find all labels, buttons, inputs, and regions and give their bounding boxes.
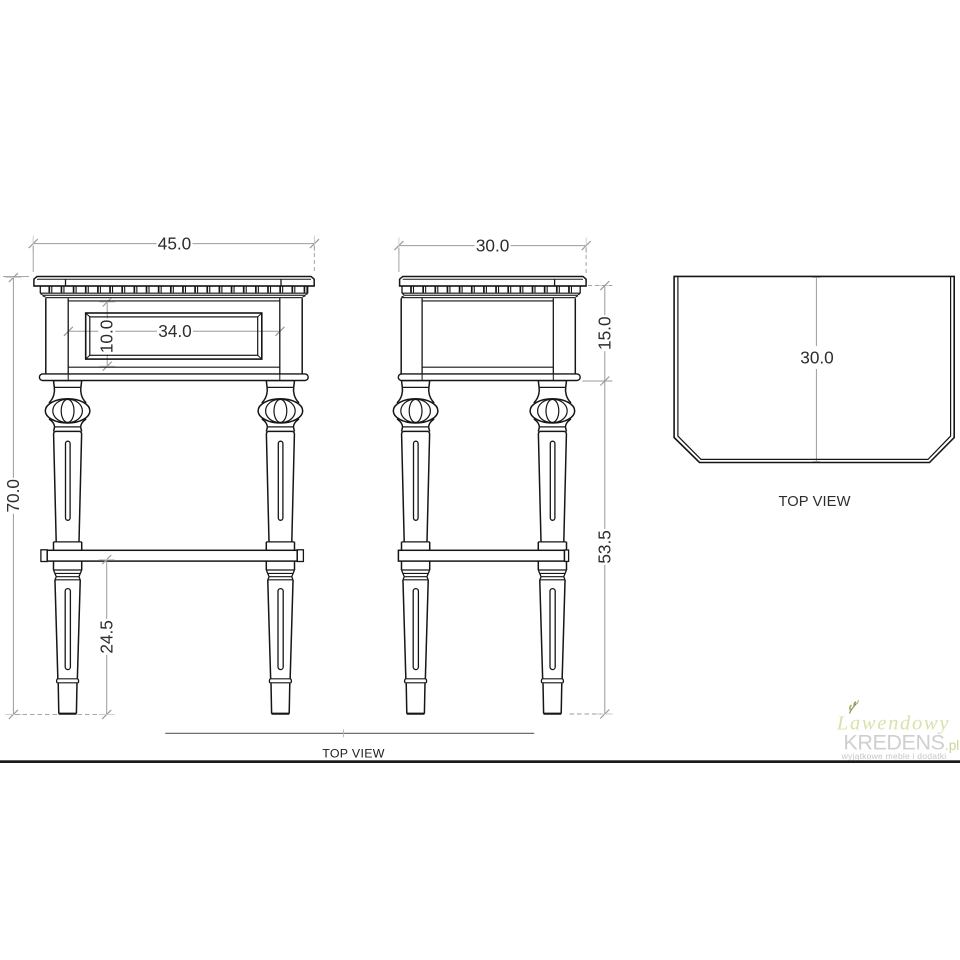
svg-text:TOP VIEW: TOP VIEW xyxy=(778,494,850,510)
svg-text:34.0: 34.0 xyxy=(158,321,191,341)
svg-text:24.5: 24.5 xyxy=(97,620,117,653)
svg-text:53.5: 53.5 xyxy=(594,530,614,563)
svg-text:TOP VIEW: TOP VIEW xyxy=(322,746,385,760)
svg-text:70.0: 70.0 xyxy=(3,479,23,512)
svg-text:15.0: 15.0 xyxy=(594,316,614,349)
svg-text:30.0: 30.0 xyxy=(800,347,833,367)
svg-text:10.0: 10.0 xyxy=(97,320,117,353)
svg-text:.pl: .pl xyxy=(945,738,959,753)
svg-text:wyjątkowe meble i dodatki: wyjątkowe meble i dodatki xyxy=(841,751,947,761)
svg-text:45.0: 45.0 xyxy=(158,234,191,254)
svg-text:30.0: 30.0 xyxy=(476,236,509,256)
